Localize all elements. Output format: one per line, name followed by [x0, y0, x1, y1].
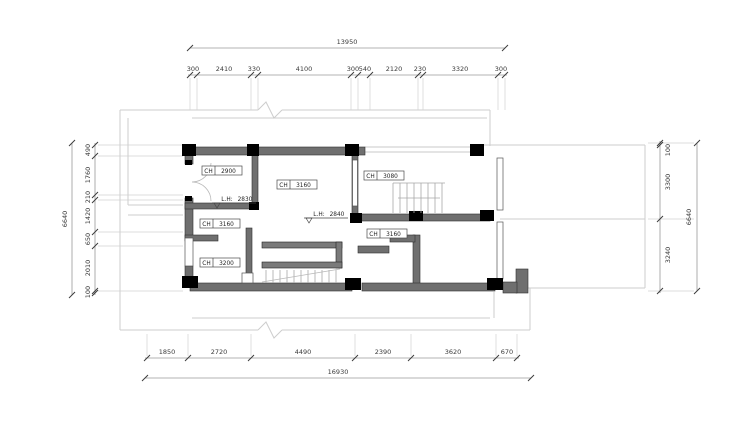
dim-left-total: 6640 [61, 211, 69, 228]
svg-text:2900: 2900 [221, 169, 236, 175]
svg-text:3620: 3620 [445, 348, 462, 356]
door-jamb-bottom [185, 196, 192, 201]
svg-text:2010: 2010 [84, 260, 92, 277]
floor-plan-drawing: 13950 300 2410 330 4100 300 540 2120 230… [0, 0, 750, 422]
svg-text:1420: 1420 [84, 208, 92, 225]
window-right-upper [497, 158, 503, 210]
dimension-chain-left: 490 1760 210 1420 650 2010 100 6640 [61, 140, 183, 298]
extension-lines-top [190, 78, 505, 110]
exterior-step-foot [503, 282, 517, 293]
svg-text:300: 300 [495, 65, 507, 73]
svg-text:CH: CH [204, 169, 212, 175]
room-label-ch-3160-right: CH 3160 [367, 229, 407, 238]
svg-text:3160: 3160 [219, 222, 234, 228]
svg-text:4100: 4100 [296, 65, 313, 73]
svg-text:330: 330 [248, 65, 260, 73]
svg-text:CH: CH [202, 222, 210, 228]
extension-lines-left [98, 145, 183, 291]
svg-text:490: 490 [84, 144, 92, 156]
break-line-bottom [258, 322, 282, 338]
room-label-ch-2900: CH 2900 [202, 166, 242, 175]
svg-text:3300: 3300 [664, 174, 672, 191]
room-label-ch-3160-mid: CH 3160 [277, 180, 317, 189]
svg-text:2830: 2830 [238, 197, 253, 203]
svg-text:3080: 3080 [383, 174, 398, 180]
dimension-chain-top: 13950 300 2410 330 4100 300 540 2120 230… [187, 38, 508, 110]
exterior-step [516, 269, 528, 293]
svg-text:CH: CH [279, 183, 287, 189]
staircase-upper [393, 183, 445, 213]
room-label-ch-3200: CH 3200 [200, 258, 240, 267]
svg-text:3200: 3200 [219, 261, 234, 267]
threshold [242, 273, 253, 283]
dimension-chain-right: 100 3300 3240 6640 [648, 140, 700, 294]
svg-text:2840: 2840 [330, 212, 345, 218]
level-label-2840: L.H: 2840 [304, 212, 348, 223]
dim-bottom-segments: 1850 2720 4490 2390 3620 670 [159, 348, 513, 356]
svg-text:300: 300 [187, 65, 199, 73]
svg-text:4490: 4490 [295, 348, 312, 356]
window-right-lower [497, 222, 503, 279]
svg-text:3160: 3160 [296, 183, 311, 189]
room-label-ch-3080: CH 3080 [364, 171, 404, 180]
svg-text:670: 670 [501, 348, 513, 356]
dim-top-total: 13950 [337, 38, 358, 46]
extension-lines-bottom [147, 334, 517, 356]
dim-bottom-total: 16930 [328, 368, 349, 376]
svg-text:CH: CH [202, 261, 210, 267]
svg-text:CH: CH [366, 174, 374, 180]
svg-text:100: 100 [664, 144, 672, 156]
window-mid [353, 160, 358, 206]
svg-text:540: 540 [359, 65, 371, 73]
svg-text:300: 300 [347, 65, 359, 73]
floor-plan-canvas: 13950 300 2410 330 4100 300 540 2120 230… [0, 0, 750, 422]
dim-right-total: 6640 [685, 209, 693, 226]
svg-text:3240: 3240 [664, 247, 672, 264]
svg-text:L.H:: L.H: [313, 212, 324, 218]
svg-text:1850: 1850 [159, 348, 176, 356]
svg-text:L.H:: L.H: [221, 197, 232, 203]
svg-text:2720: 2720 [211, 348, 228, 356]
svg-text:210: 210 [84, 191, 92, 203]
svg-text:3320: 3320 [452, 65, 469, 73]
svg-text:2390: 2390 [375, 348, 392, 356]
door-jamb-top [185, 160, 192, 165]
svg-text:650: 650 [84, 233, 92, 245]
svg-text:CH: CH [369, 232, 377, 238]
svg-text:100: 100 [84, 286, 92, 298]
svg-text:230: 230 [414, 65, 426, 73]
dimension-chain-bottom: 1850 2720 4490 2390 3620 670 16930 [142, 334, 534, 381]
room-label-ch-3160-left: CH 3160 [200, 219, 240, 228]
staircase-lower [262, 242, 342, 283]
svg-text:2410: 2410 [216, 65, 233, 73]
svg-text:2120: 2120 [386, 65, 403, 73]
dim-right-segments: 100 3300 3240 [664, 144, 672, 263]
break-line-top [258, 102, 282, 118]
window-left [185, 238, 193, 266]
dim-top-segments: 300 2410 330 4100 300 540 2120 230 3320 … [187, 65, 507, 73]
level-marker-icon [306, 218, 312, 223]
svg-text:3160: 3160 [386, 232, 401, 238]
dim-left-segments: 490 1760 210 1420 650 2010 100 [84, 144, 92, 298]
svg-text:1760: 1760 [84, 167, 92, 184]
